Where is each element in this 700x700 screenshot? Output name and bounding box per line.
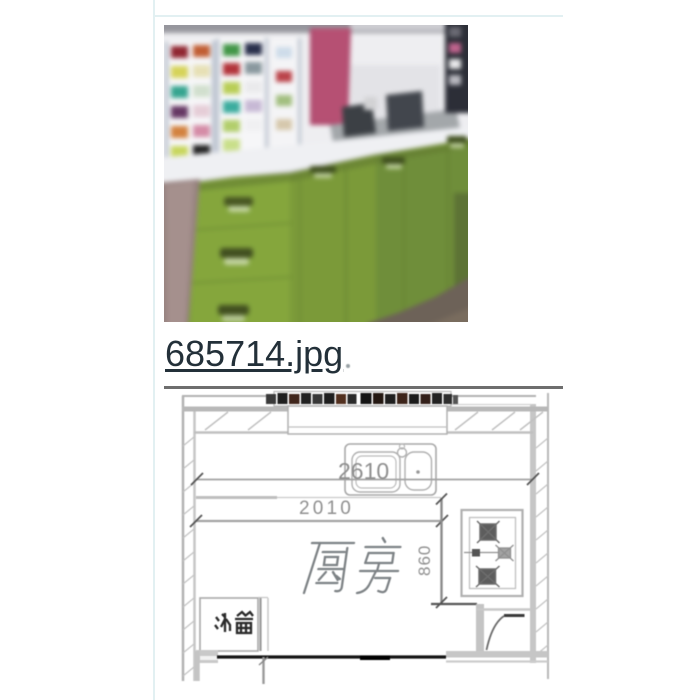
svg-text:2010: 2010	[299, 498, 354, 519]
svg-text:860: 860	[415, 545, 434, 576]
svg-text:2610: 2610	[338, 458, 389, 484]
